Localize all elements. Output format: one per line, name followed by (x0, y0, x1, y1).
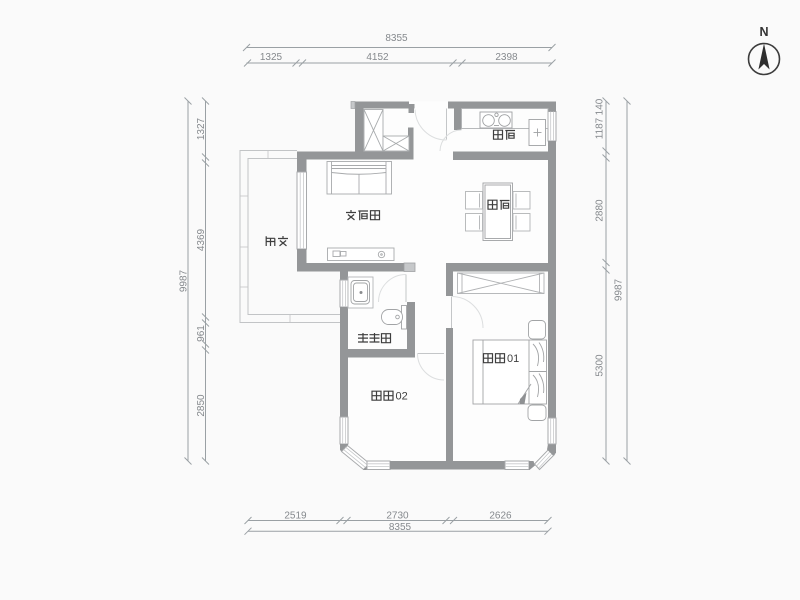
svg-text:1325: 1325 (260, 52, 283, 63)
svg-text:1327: 1327 (196, 117, 207, 140)
svg-text:2880: 2880 (595, 199, 606, 222)
svg-text:9987: 9987 (179, 269, 190, 292)
svg-text:5300: 5300 (595, 354, 606, 377)
svg-text:4152: 4152 (366, 52, 389, 63)
svg-text:961: 961 (196, 325, 207, 342)
svg-text:2398: 2398 (495, 52, 518, 63)
svg-text:1187: 1187 (595, 117, 606, 139)
svg-text:2730: 2730 (386, 511, 409, 522)
svg-text:9987: 9987 (614, 278, 625, 301)
svg-text:2850: 2850 (196, 394, 207, 417)
svg-text:N: N (759, 25, 768, 39)
svg-text:2519: 2519 (284, 511, 307, 522)
svg-text:4369: 4369 (196, 228, 207, 251)
svg-text:140: 140 (595, 98, 606, 115)
svg-text:8355: 8355 (385, 33, 408, 44)
svg-text:02: 02 (396, 391, 408, 403)
svg-text:2626: 2626 (489, 511, 512, 522)
svg-text:8355: 8355 (389, 522, 412, 533)
svg-text:01: 01 (507, 353, 519, 365)
